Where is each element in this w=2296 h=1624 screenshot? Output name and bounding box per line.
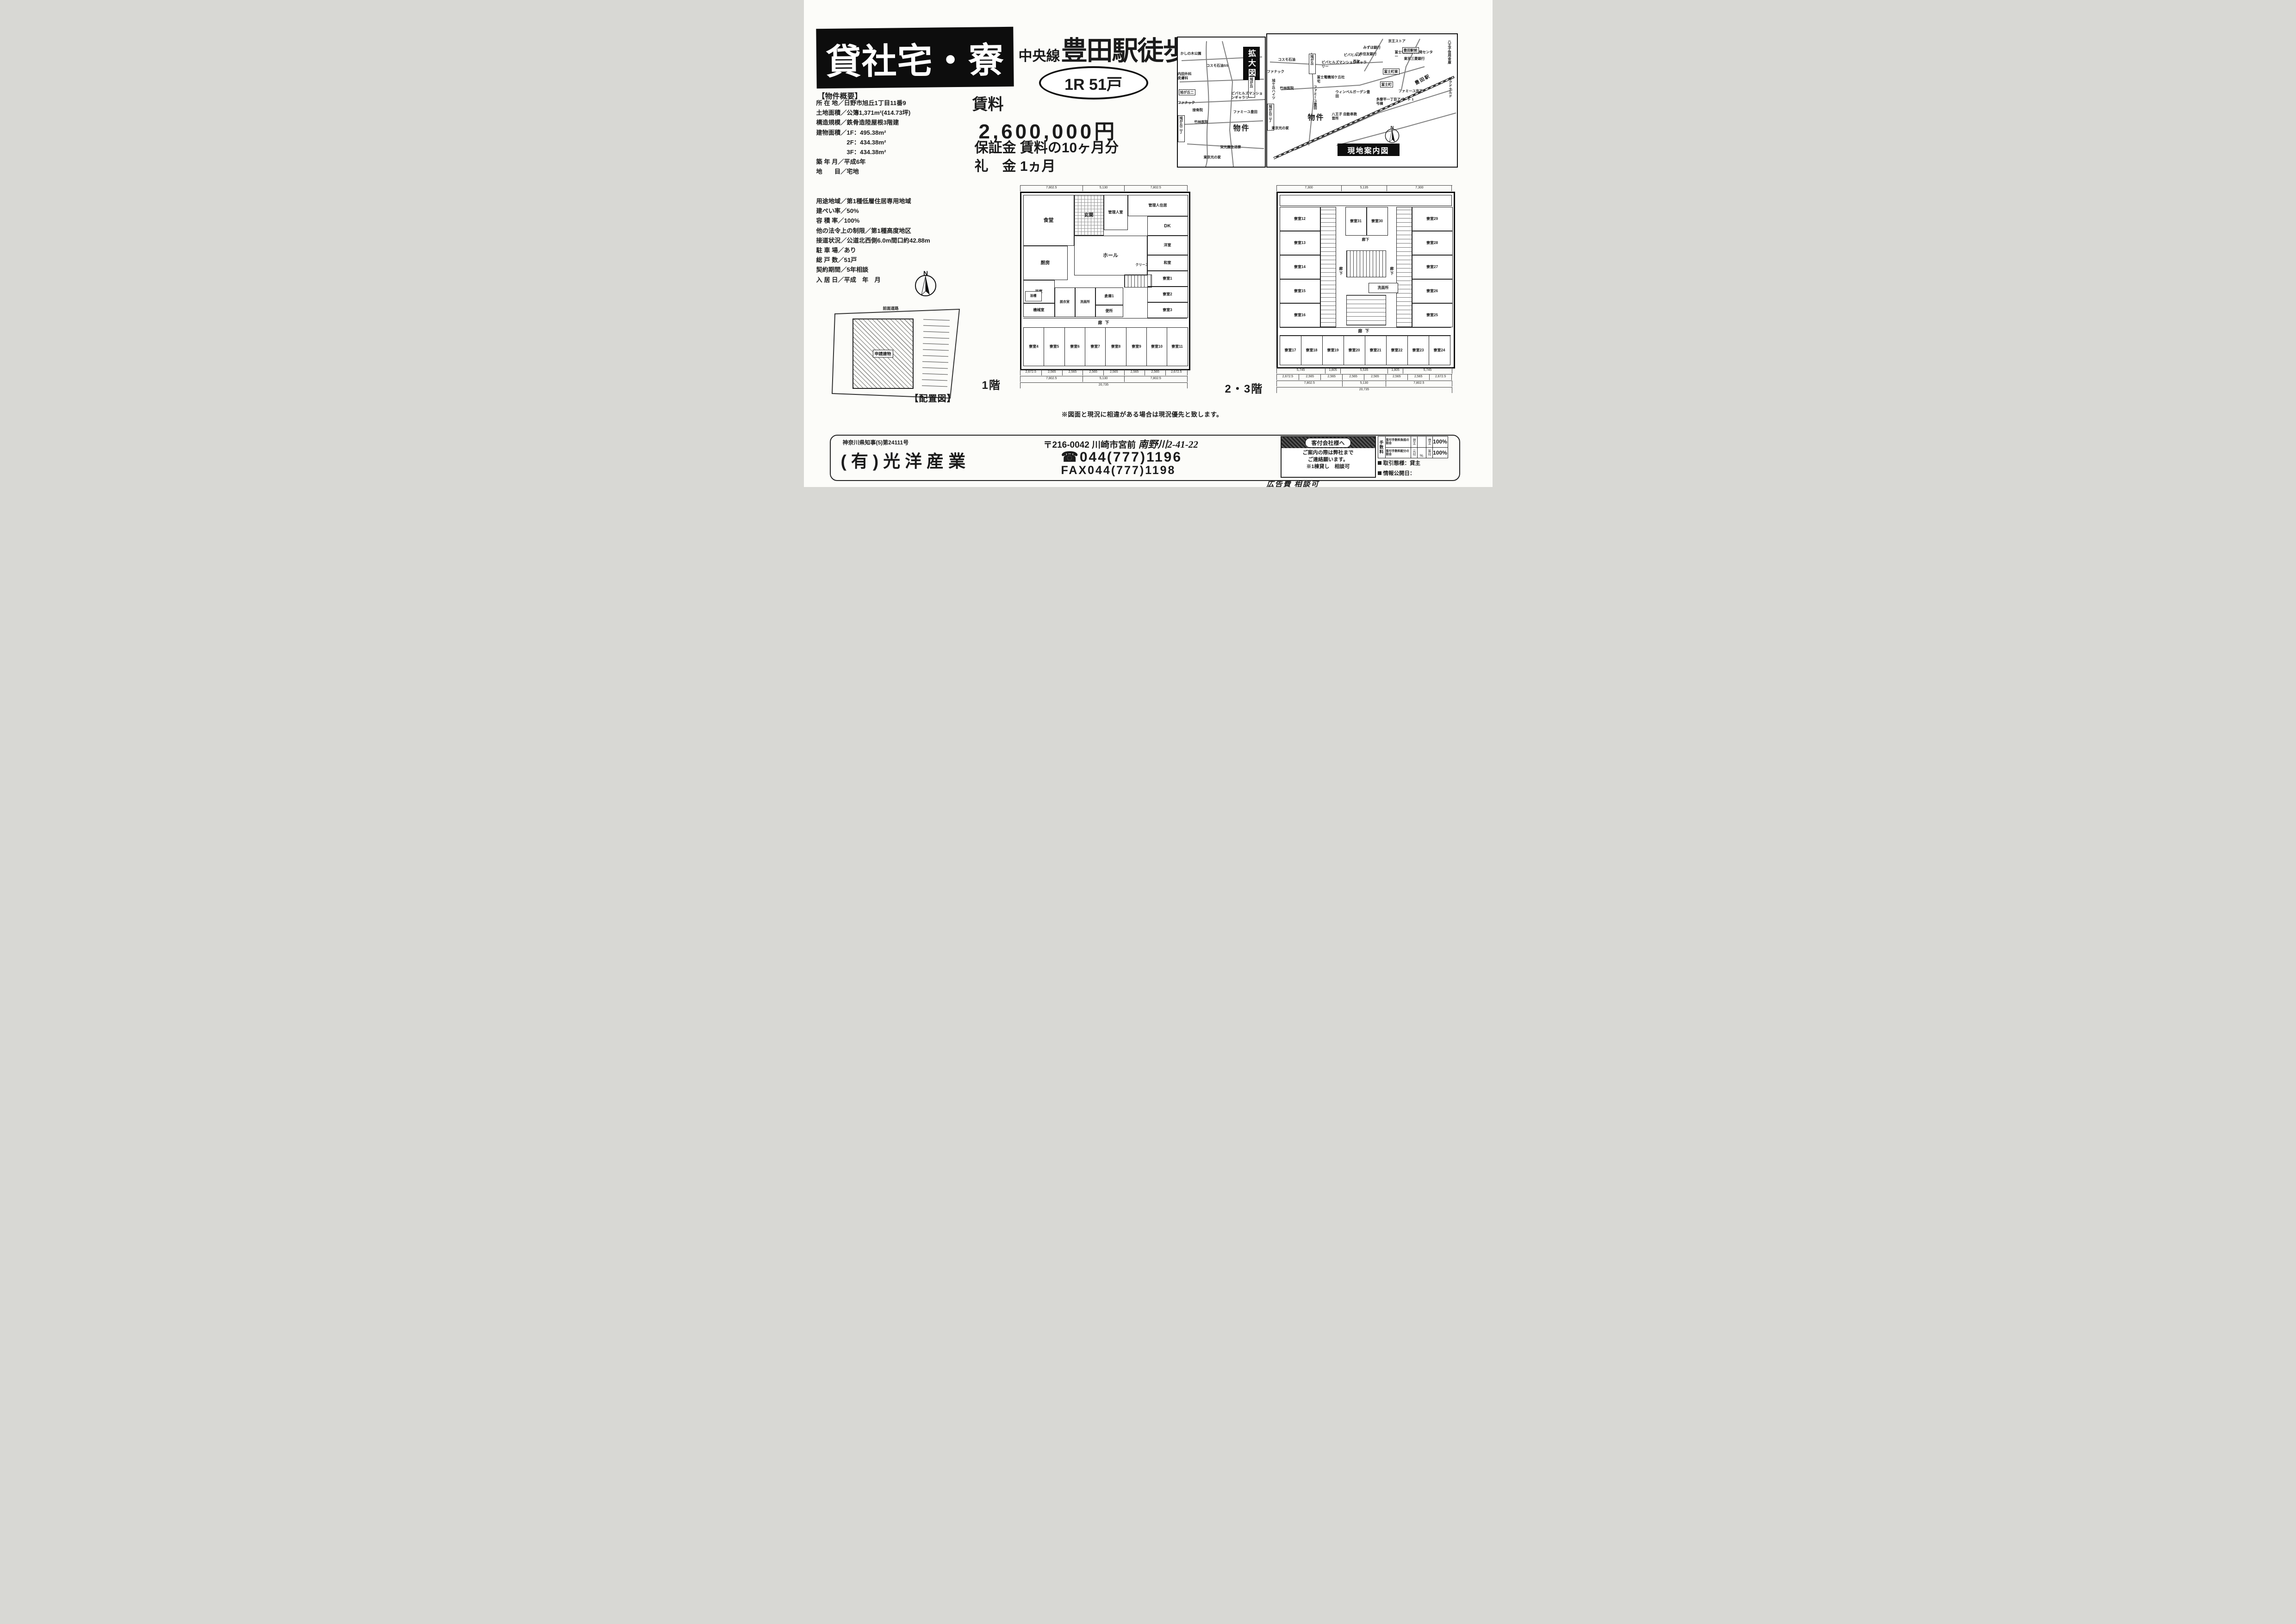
room-cell: 寮室6 [1064, 327, 1086, 366]
map-label: ファミーユ京王 [1399, 89, 1423, 93]
floor2-cells: 寮室31寮室30廊下寮室12寮室13寮室14寮室15寮室16寮室29寮室28寮室… [1278, 193, 1454, 367]
map-label: 栄光園生活寮 [1220, 145, 1241, 149]
map-label: 八王子 自動車教習所 [1332, 112, 1361, 120]
room-cell: 寮室2 [1147, 287, 1188, 302]
room-cell: 浴槽 [1025, 291, 1042, 301]
map-label: ビバヒルズマンションギャラリー [1232, 91, 1263, 100]
room-cell: 食堂 [1023, 195, 1074, 246]
overview-item: 用途地域／第1種低層住居専用地域 [816, 196, 1020, 206]
square-bullet-icon [1378, 461, 1381, 465]
fee-row-party1: 元付 [1411, 448, 1418, 458]
fee-table-header: 手数料 [1378, 437, 1386, 458]
overview-item [816, 177, 1020, 187]
room-cell: 廊下 [1023, 318, 1187, 328]
fee-row: 客付手数料配分の割合 元付 % 客付 100% [1386, 448, 1448, 458]
room-cell: 管理人室 [1104, 195, 1128, 230]
floor1-dims-total: 20,735 [1020, 382, 1188, 388]
room-cell: 寮室22 [1386, 336, 1408, 365]
enlarged-map-panel: 拡大図 かしの木公園内田外科皮膚科コスモ石油SS旭が丘二ファナック接骨院旭が丘ビ… [1177, 37, 1266, 168]
fee-row-party1: 貸主 [1411, 437, 1418, 447]
room-cell: 和室 [1147, 255, 1188, 271]
fax-number: 044(777)1198 [1088, 464, 1176, 477]
dimension-value: 7,300 [1276, 186, 1341, 191]
room-cell: 寮室31 [1345, 207, 1367, 236]
overview-item: 容 積 率／100% [816, 216, 1020, 225]
dimension-value: 7,802.5 [1124, 186, 1188, 191]
map-label: ビバヒルズ（建） [1256, 51, 1260, 91]
site-plan-caption: 【配置図】 [910, 392, 956, 404]
floor2-dims-r2: 7,802.55,1307,802.5 [1276, 381, 1452, 387]
floor2-dims-r0: 5,7451,8055,5351,8055,745 [1276, 368, 1452, 374]
floor2-label: 2・3階 [1225, 380, 1263, 396]
fee-row-value2: 100% [1433, 437, 1448, 447]
room-cell: 洗面所 [1369, 283, 1398, 293]
ad-cost-note: 広告費 相談可 [1267, 478, 1319, 487]
map-label: 竹林医院 [1195, 120, 1213, 124]
dimension-value: 2,672.5 [1276, 375, 1299, 380]
dimension-value: 7,802.5 [1276, 381, 1342, 387]
dimension-value: 5,135 [1341, 186, 1387, 191]
room-cell: 寮室25 [1412, 303, 1453, 327]
room-cell [1124, 275, 1152, 287]
key-money-line: 礼 金 1ヵ月 [975, 155, 1056, 175]
overview-item: 駐 車 場／あり [816, 245, 1020, 255]
room-cell: 寮室27 [1412, 255, 1453, 279]
floor2-dims-top: 7,3005,1357,300 [1276, 185, 1452, 191]
dimension-value: 7,802.5 [1124, 376, 1188, 382]
dimension-value: 1,805 [1388, 368, 1403, 374]
map-label: 八王子信用金庫 [1448, 40, 1452, 75]
room-cell: 寮室24 [1429, 336, 1450, 365]
map-label: ファミーユ豊田 [1313, 85, 1318, 116]
dimension-value: 2,565 [1103, 370, 1124, 375]
fee-row-value1 [1418, 437, 1426, 447]
fee-row-label: 客付手数料負担の割合 [1386, 437, 1411, 447]
room-cell: 寮室30 [1367, 207, 1388, 236]
room-cell: 脱衣室 [1055, 287, 1075, 317]
map-label: 三井住友銀行 [1356, 52, 1377, 56]
map-label: 旭ケ丘ハイツ [1272, 79, 1276, 106]
room-cell [1396, 207, 1412, 327]
room-cell: 寮室1 [1147, 271, 1188, 287]
room-cell: 寮室12 [1280, 207, 1320, 231]
fax-label: FAX [1061, 464, 1088, 477]
map-label: ファミーユ豊田 [1233, 110, 1261, 114]
flyer-page: 貸社宅・寮 【物件概要】 所 在 地／日野市旭丘1丁目11番9土地面積／公簿1,… [804, 0, 1493, 487]
room-cell: 寮室11 [1167, 327, 1188, 366]
map-label: 富士町東 [1383, 69, 1400, 75]
room-cell: 寮室9 [1126, 327, 1147, 366]
dimension-value: 5,130 [1083, 376, 1124, 382]
guide-map-title: 現地案内図 [1338, 144, 1400, 156]
map-label: 多摩平一丁目アパート 1号棟 [1376, 97, 1417, 106]
floor1-label: 1階 [982, 376, 1001, 392]
agent-box: 客付会社様へ ご案内の際は弊社までご連絡願います。※1棟貸し 相談可 [1281, 436, 1376, 478]
deposit-line: 保証金 賃料の10ヶ月分 [975, 136, 1119, 156]
room-cell: 寮室10 [1146, 327, 1168, 366]
room-cell [1346, 295, 1386, 325]
rent-label: 賃料 [972, 92, 1004, 114]
agent-box-line: ※1棟貸し 相談可 [1284, 463, 1372, 470]
map-label: 内田外科皮膚科 [1178, 72, 1194, 80]
room-cell: 寮室26 [1412, 279, 1453, 303]
fee-row-value2: 100% [1433, 448, 1448, 458]
dimension-value: 2,565 [1124, 370, 1145, 375]
info-date-line: 情報公開日： [1378, 469, 1415, 477]
front-road-label: 前面道路 [883, 306, 899, 311]
floor2-plan: 寮室31寮室30廊下寮室12寮室13寮室14寮室15寮室16寮室29寮室28寮室… [1276, 192, 1455, 369]
room-cell [1346, 250, 1386, 277]
info-date-text: 情報公開日： [1383, 471, 1415, 476]
banner-title: 貸社宅・寮 [816, 27, 1014, 88]
room-cell: DK [1147, 216, 1188, 236]
map-label: コスモ石油 [1278, 57, 1296, 62]
overview-item: 建ぺい率／50% [816, 206, 1020, 216]
room-cell: 寮室17 [1280, 336, 1301, 365]
map-label: マクドナルド [1449, 77, 1453, 107]
room-cell: 管理人住居 [1128, 195, 1188, 216]
site-plan: 前面道路 申請建物 [828, 306, 964, 403]
fee-row-label: 客付手数料配分の割合 [1386, 448, 1411, 458]
room-cell: 倉庫1 [1095, 287, 1123, 305]
fee-table: 手数料 客付手数料負担の割合 貸主 借主 100% 客付手数料配分の割合 元付 … [1378, 436, 1448, 458]
fee-row-party2: 借主 [1426, 437, 1433, 447]
map-label: 京王ストア [1388, 39, 1406, 43]
room-cell: 廊下 [1337, 261, 1344, 282]
dimension-value: 2,565 [1386, 375, 1407, 380]
address-handwritten: 南野川2-41-22 [1138, 439, 1198, 450]
company-name: (有)光洋産業 [841, 447, 971, 472]
room-cell: 廊下 [1280, 327, 1451, 336]
room-cell: 寮室16 [1280, 303, 1320, 327]
room-cell [1280, 195, 1452, 206]
agent-box-header: 客付会社様へ [1282, 437, 1375, 448]
site-building: 申請建物 [852, 319, 914, 389]
floor1-dims-r2: 7,802.55,1307,802.5 [1020, 376, 1188, 382]
dimension-value: 5,535 [1340, 368, 1387, 374]
dimension-value: 7,802.5 [1386, 381, 1452, 387]
map-label: ファナック [1178, 100, 1195, 105]
room-cell: 寮室14 [1280, 255, 1320, 279]
map-label: 東京光の家 [1204, 155, 1221, 159]
room-cell: 寮室3 [1147, 302, 1188, 318]
floor2-dims-total: 20,735 [1276, 387, 1452, 393]
unit-type-badge: 1R 51戸 [1039, 66, 1148, 100]
dimension-value: 1,805 [1325, 368, 1341, 374]
guide-map-panel: 現地案内図 N コスモ石油旭が丘ビバヒルズビバヒルズマンションギャラリー富士電機… [1266, 33, 1458, 168]
room-cell: 寮室20 [1344, 336, 1365, 365]
map-label: 物件 [1308, 116, 1325, 120]
map-label: ファナック [1267, 69, 1285, 74]
deal-type-line: 取引態様：貸主 [1378, 459, 1421, 467]
dimension-value: 2,565 [1041, 370, 1062, 375]
room-cell: 寮室28 [1412, 231, 1453, 255]
room-cell: 廊下 [1347, 237, 1384, 243]
overview-item [816, 187, 1020, 196]
map-label: 西友 [1353, 59, 1360, 63]
compass-icon: N [1384, 125, 1400, 144]
room-cell [1320, 207, 1336, 327]
overview-item: 接道状況／公道北西側6.0m間口約42.88m [816, 236, 1020, 245]
room-cell: 機械室 [1023, 303, 1055, 317]
dimension-value: 2,565 [1299, 375, 1320, 380]
room-cell: 廊下 [1388, 261, 1395, 282]
phone-line: ☎044(777)1196 [1061, 449, 1182, 465]
room-cell: 寮室23 [1407, 336, 1429, 365]
headline-line: 中央線 [1019, 44, 1060, 68]
map-label: かしの木公園 [1181, 51, 1207, 56]
dimension-value: 2,565 [1320, 375, 1342, 380]
floor1-plan: 食堂玄関管理人室管理人住居DK洋室ホール厨房クリーニング和室寮室1寮室2寮室3浴… [1020, 192, 1190, 370]
dimension-value: 2,672.5 [1429, 375, 1452, 380]
overview-item: 総 戸 数／51戸 [816, 255, 1020, 265]
room-cell: 便所 [1095, 305, 1123, 317]
postal-code: 〒216-0042 川崎市宮前 [1044, 440, 1136, 450]
map-label: 東京光の家 [1272, 126, 1289, 130]
agent-box-body: ご案内の際は弊社までご連絡願います。※1棟貸し 相談可 [1282, 448, 1375, 472]
map-label: 物件 [1233, 126, 1250, 131]
room-cell: 寮室29 [1412, 207, 1453, 231]
dimension-value: 2,565 [1407, 375, 1429, 380]
dimension-value: 2,565 [1342, 375, 1364, 380]
dimension-value: 5,130 [1342, 381, 1386, 387]
floor1-dims-top: 7,802.55,1307,802.5 [1020, 185, 1188, 191]
map-label: 竹林医院 [1280, 86, 1297, 90]
map-label: コスモ石油SS [1207, 63, 1231, 68]
map-label: 旭が丘二丁 [1178, 115, 1185, 142]
room-cell: 寮室19 [1322, 336, 1344, 365]
dimension-value: 2,565 [1145, 370, 1165, 375]
agent-box-line: ご連絡願います。 [1284, 456, 1372, 463]
dimension-value: 2,565 [1364, 375, 1386, 380]
fee-row-party2: 客付 [1426, 448, 1433, 458]
floor1-dims-r1: 2,672.52,5652,5652,5652,5652,5652,5652,6… [1020, 369, 1188, 375]
dimension-value: 5,745 [1276, 368, 1325, 374]
room-cell: 寮室5 [1044, 327, 1065, 366]
floor2-dims-r1: 2,672.52,5652,5652,5652,5652,5652,5652,6… [1276, 374, 1452, 380]
room-cell: 寮室15 [1280, 279, 1320, 303]
dimension-value: 2,565 [1062, 370, 1083, 375]
deal-type-text: 取引態様：貸主 [1383, 461, 1421, 466]
fax-line: FAX044(777)1198 [1061, 464, 1176, 477]
map-label: みずほ銀行 [1363, 45, 1381, 50]
dimension-value: 20,735 [1020, 383, 1188, 388]
overview-item: 他の法令上の制限／第1種高度地区 [816, 226, 1020, 236]
phone-number: 044(777)1196 [1080, 450, 1182, 465]
room-cell: 寮室18 [1301, 336, 1323, 365]
compass-icon: N [913, 270, 938, 297]
dimension-value: 7,802.5 [1020, 376, 1083, 382]
map-label: 富士電機旭ケ丘社宅 [1317, 75, 1348, 83]
agent-box-line: ご案内の際は弊社まで [1284, 450, 1372, 456]
dimension-value: 20,735 [1276, 387, 1452, 393]
dimension-value: 5,130 [1083, 186, 1124, 191]
license-number: 神奈川県知事(5)第24111号 [843, 438, 909, 446]
dimension-value: 7,300 [1387, 186, 1452, 191]
dimension-value: 2,672.5 [1165, 370, 1188, 375]
map-label: 東京三菱銀行 [1404, 56, 1425, 61]
dimension-value: 2,672.5 [1020, 370, 1042, 375]
map-label: 旭が丘二 [1179, 89, 1195, 95]
dimension-value: 5,745 [1403, 368, 1452, 374]
room-cell: 寮室21 [1365, 336, 1387, 365]
fee-row: 客付手数料負担の割合 貸主 借主 100% [1386, 437, 1448, 448]
room-cell: 洗面所 [1075, 287, 1095, 317]
fee-table-rows: 客付手数料負担の割合 貸主 借主 100% 客付手数料配分の割合 元付 % 客付… [1386, 437, 1448, 458]
room-cell: 厨房 [1023, 246, 1068, 280]
map-label: 富士町 [1380, 81, 1394, 87]
room-cell: 玄関 [1074, 195, 1104, 236]
room-cell: 寮室8 [1105, 327, 1127, 366]
room-cell: 寮室4 [1023, 327, 1045, 366]
map-label: 接骨院 [1193, 108, 1203, 112]
room-cell: 洋室 [1147, 236, 1188, 255]
room-cell: 寮室7 [1085, 327, 1106, 366]
square-bullet-icon [1378, 471, 1381, 475]
map-label: ウィンベルガーデン豊田 [1336, 90, 1373, 98]
fee-row-value1: % [1418, 448, 1426, 458]
disclaimer-note: ※図面と現況に相違がある場合は現況優先と致します。 [1062, 409, 1223, 418]
map-label: 豊田駅前 [1402, 47, 1419, 53]
phone-icon: ☎ [1061, 450, 1080, 465]
map-label: 旭が丘 [1309, 54, 1316, 74]
dimension-value: 2,565 [1083, 370, 1103, 375]
room-cell: 寮室13 [1280, 231, 1320, 255]
floor1-cells: 食堂玄関管理人室管理人住居DK洋室ホール厨房クリーニング和室寮室1寮室2寮室3浴… [1021, 193, 1189, 369]
dimension-value: 7,802.5 [1020, 186, 1083, 191]
site-building-label: 申請建物 [872, 350, 893, 358]
agent-box-title: 客付会社様へ [1305, 438, 1350, 448]
